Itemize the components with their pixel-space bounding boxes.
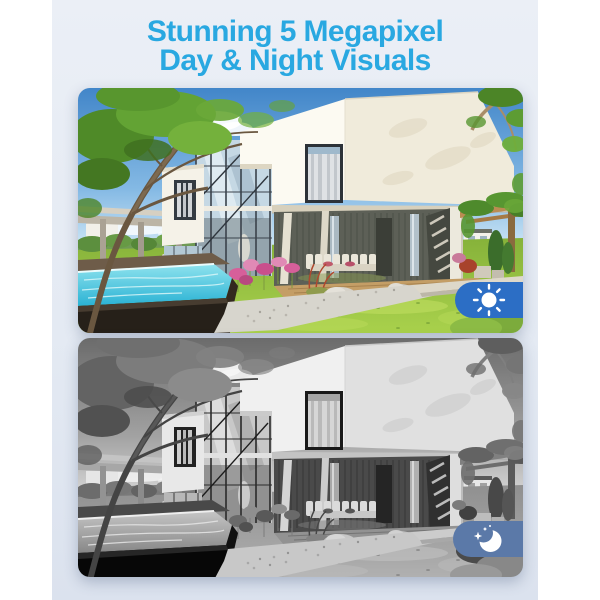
- night-mode-badge: [453, 521, 523, 557]
- night-image-panel: [78, 338, 523, 577]
- title-line-1: Stunning 5 Megapixel: [52, 18, 538, 47]
- title-line-2: Day & Night Visuals: [52, 47, 538, 76]
- day-mode-badge: [455, 282, 523, 318]
- day-image-panel: [78, 88, 523, 333]
- moon-icon: [471, 522, 505, 556]
- content-canvas: Stunning 5 Megapixel Day & Night Visuals: [52, 0, 538, 600]
- page-title: Stunning 5 Megapixel Day & Night Visuals: [52, 18, 538, 75]
- sun-icon: [472, 283, 506, 317]
